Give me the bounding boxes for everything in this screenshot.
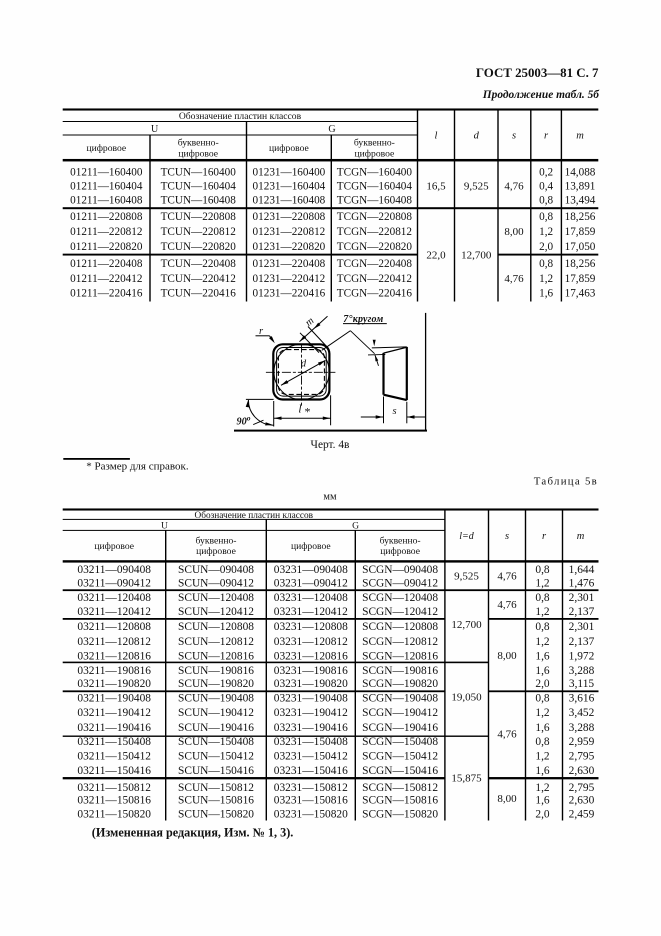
svg-text:TCGN—160404: TCGN—160404: [337, 180, 413, 192]
svg-text:8,00: 8,00: [497, 793, 517, 805]
svg-text:01211—220416: 01211—220416: [70, 287, 143, 299]
svg-text:9,525: 9,525: [464, 180, 489, 192]
svg-text:SCGN—150812: SCGN—150812: [362, 782, 438, 794]
svg-text:01211—220408: 01211—220408: [70, 258, 143, 270]
svg-text:SCGN—190408: SCGN—190408: [362, 693, 438, 705]
svg-text:TCGN—160408: TCGN—160408: [337, 194, 413, 206]
svg-text:Обозначение пластин классов: Обозначение пластин классов: [195, 510, 314, 521]
svg-text:13,494: 13,494: [565, 194, 596, 206]
svg-text:03211—190820: 03211—190820: [77, 678, 151, 690]
svg-text:03231—120808: 03231—120808: [274, 621, 348, 633]
svg-text:s: s: [392, 406, 396, 417]
svg-text:18,256: 18,256: [565, 211, 596, 223]
svg-text:01211—160408: 01211—160408: [70, 194, 143, 206]
svg-text:SCUN—190412: SCUN—190412: [178, 707, 254, 719]
svg-text:03231—120412: 03231—120412: [274, 606, 348, 618]
svg-text:1,6: 1,6: [535, 665, 550, 677]
svg-text:3,616: 3,616: [569, 693, 595, 705]
svg-text:12,700: 12,700: [461, 250, 492, 262]
svg-text:SCGN—120408: SCGN—120408: [362, 592, 438, 604]
svg-text:4,76: 4,76: [497, 570, 517, 582]
svg-text:03231—150416: 03231—150416: [274, 765, 348, 777]
svg-text:SCGN—190816: SCGN—190816: [362, 665, 438, 677]
svg-text:SCUN—150816: SCUN—150816: [178, 795, 254, 807]
svg-text:2,137: 2,137: [569, 636, 595, 648]
svg-text:G: G: [328, 124, 335, 135]
svg-text:0,8: 0,8: [539, 258, 553, 270]
svg-text:SCUN—190416: SCUN—190416: [178, 722, 254, 734]
svg-text:03231—120816: 03231—120816: [274, 650, 348, 662]
svg-text:2,795: 2,795: [569, 782, 595, 794]
svg-text:* Размер для справок.: * Размер для справок.: [86, 460, 189, 472]
svg-text:03211—120408: 03211—120408: [77, 592, 151, 604]
svg-text:буквенно-: буквенно-: [178, 138, 219, 149]
svg-text:цифровое: цифровое: [178, 148, 218, 159]
svg-text:13,891: 13,891: [565, 180, 596, 192]
svg-text:12,700: 12,700: [451, 619, 482, 631]
svg-text:s: s: [512, 131, 516, 142]
svg-text:03211—150416: 03211—150416: [77, 765, 151, 777]
svg-text:03231—150812: 03231—150812: [274, 782, 348, 794]
svg-text:03231—190412: 03231—190412: [274, 707, 348, 719]
svg-text:SCUN—120816: SCUN—120816: [178, 650, 254, 662]
svg-text:9,525: 9,525: [454, 570, 479, 582]
svg-text:03231—120812: 03231—120812: [274, 636, 348, 648]
svg-text:SCUN—090408: SCUN—090408: [178, 564, 254, 576]
svg-text:03231—150816: 03231—150816: [274, 795, 348, 807]
svg-text:буквенно-: буквенно-: [354, 138, 395, 149]
svg-text:1,644: 1,644: [569, 564, 595, 576]
svg-text:цифровое: цифровое: [196, 546, 236, 557]
svg-text:01231—220808: 01231—220808: [253, 211, 326, 223]
svg-text:SCUN—190408: SCUN—190408: [178, 693, 254, 705]
svg-text:0,8: 0,8: [539, 211, 553, 223]
svg-text:03231—090408: 03231—090408: [274, 564, 348, 576]
svg-text:03211—150412: 03211—150412: [77, 751, 151, 763]
svg-text:1,2: 1,2: [535, 636, 550, 648]
svg-text:2,630: 2,630: [569, 795, 595, 807]
svg-text:цифровое: цифровое: [94, 541, 134, 552]
svg-text:SCGN—120816: SCGN—120816: [362, 650, 438, 662]
svg-text:03211—190816: 03211—190816: [77, 665, 151, 677]
svg-text:0,8: 0,8: [535, 564, 550, 576]
svg-text:цифровое: цифровое: [380, 546, 420, 557]
svg-text:03231—090412: 03231—090412: [274, 578, 348, 590]
svg-text:TCGN—220412: TCGN—220412: [337, 273, 412, 285]
svg-text:SCGN—090408: SCGN—090408: [362, 564, 438, 576]
svg-text:19,050: 19,050: [451, 692, 482, 704]
svg-text:8,00: 8,00: [497, 650, 517, 662]
svg-text:8,00: 8,00: [504, 226, 524, 238]
svg-text:TCUN—220412: TCUN—220412: [161, 273, 236, 285]
svg-text:2,137: 2,137: [569, 606, 595, 618]
svg-text:0,4: 0,4: [539, 180, 553, 192]
svg-text:l=d: l=d: [459, 531, 475, 542]
svg-text:TCUN—160408: TCUN—160408: [161, 194, 237, 206]
svg-text:03231—190416: 03231—190416: [274, 722, 348, 734]
svg-text:ГОСТ 25003—81 С. 7: ГОСТ 25003—81 С. 7: [476, 66, 599, 80]
svg-text:2,795: 2,795: [569, 751, 595, 763]
svg-text:SCUN—150408: SCUN—150408: [178, 736, 254, 748]
svg-text:1,2: 1,2: [535, 751, 550, 763]
svg-text:1,476: 1,476: [569, 578, 595, 590]
svg-text:3,115: 3,115: [569, 678, 595, 690]
svg-text:TCGN—220820: TCGN—220820: [337, 241, 413, 253]
svg-text:01211—160404: 01211—160404: [70, 180, 143, 192]
svg-text:SCUN—120808: SCUN—120808: [178, 621, 254, 633]
svg-text:1,2: 1,2: [535, 707, 550, 719]
svg-text:m: m: [576, 131, 584, 142]
svg-text:01231—220408: 01231—220408: [253, 258, 326, 270]
svg-text:SCGN—150820: SCGN—150820: [362, 809, 438, 821]
svg-text:3,452: 3,452: [569, 707, 595, 719]
svg-text:2,0: 2,0: [535, 678, 550, 690]
svg-text:01231—220416: 01231—220416: [253, 287, 326, 299]
svg-text:1,2: 1,2: [539, 226, 553, 238]
svg-text:SCUN—150820: SCUN—150820: [178, 809, 254, 821]
svg-text:Таблица 5в: Таблица 5в: [534, 475, 598, 487]
svg-text:цифровое: цифровое: [355, 148, 395, 159]
svg-text:SCUN—150812: SCUN—150812: [178, 782, 254, 794]
svg-text:01231—220412: 01231—220412: [253, 273, 326, 285]
svg-text:01211—160400: 01211—160400: [70, 167, 143, 179]
svg-text:SCGN—090412: SCGN—090412: [362, 578, 438, 590]
svg-text:4,76: 4,76: [497, 599, 517, 611]
svg-text:1,6: 1,6: [535, 650, 550, 662]
svg-text:03231—190408: 03231—190408: [274, 693, 348, 705]
svg-text:3,288: 3,288: [569, 665, 595, 677]
svg-text:17,463: 17,463: [565, 287, 596, 299]
svg-text:TCUN—220416: TCUN—220416: [161, 287, 237, 299]
svg-text:03231—120408: 03231—120408: [274, 592, 348, 604]
svg-text:цифровое: цифровое: [269, 143, 309, 154]
svg-text:2,301: 2,301: [569, 621, 595, 633]
svg-text:14,088: 14,088: [565, 167, 596, 179]
svg-text:17,050: 17,050: [565, 241, 596, 253]
svg-text:03231—190820: 03231—190820: [274, 678, 348, 690]
svg-text:2,0: 2,0: [535, 809, 550, 821]
svg-text:03211—190412: 03211—190412: [77, 707, 151, 719]
svg-text:17,859: 17,859: [565, 226, 596, 238]
svg-text:2,301: 2,301: [569, 592, 595, 604]
svg-text:SCGN—120412: SCGN—120412: [362, 606, 438, 618]
svg-text:03231—150412: 03231—150412: [274, 751, 348, 763]
svg-text:2,630: 2,630: [569, 765, 595, 777]
svg-text:03211—120808: 03211—120808: [77, 621, 151, 633]
svg-text:буквенно-: буквенно-: [380, 535, 421, 546]
svg-text:l: l: [435, 131, 438, 142]
svg-text:SCGN—120812: SCGN—120812: [362, 636, 438, 648]
svg-text:TCGN—220408: TCGN—220408: [337, 258, 413, 270]
svg-text:1,2: 1,2: [535, 782, 550, 794]
svg-text:SCUN—190820: SCUN—190820: [178, 678, 254, 690]
svg-text:15,875: 15,875: [451, 773, 482, 785]
svg-text:d: d: [301, 359, 307, 370]
svg-text:01231—160400: 01231—160400: [253, 167, 326, 179]
svg-text:03211—150408: 03211—150408: [77, 736, 151, 748]
svg-text:Продолжение табл. 5б: Продолжение табл. 5б: [482, 89, 601, 101]
svg-text:(Измененная редакция, Изм. № 1: (Измененная редакция, Изм. № 1, 3).: [92, 826, 294, 840]
svg-text:SCGN—150408: SCGN—150408: [362, 736, 438, 748]
svg-text:мм: мм: [323, 492, 337, 503]
svg-text:0,8: 0,8: [539, 194, 553, 206]
svg-text:TCGN—220808: TCGN—220808: [337, 211, 413, 223]
svg-text:03211—150816: 03211—150816: [77, 795, 151, 807]
svg-text:01211—220812: 01211—220812: [70, 226, 142, 238]
svg-text:03211—090408: 03211—090408: [77, 564, 151, 576]
svg-text:TCUN—160404: TCUN—160404: [161, 180, 237, 192]
svg-text:01211—220412: 01211—220412: [70, 273, 142, 285]
svg-text:0,8: 0,8: [535, 592, 550, 604]
svg-text:22,0: 22,0: [426, 250, 446, 262]
svg-text:1,2: 1,2: [535, 606, 550, 618]
svg-text:l: l: [298, 404, 301, 416]
svg-text:Черт. 4в: Черт. 4в: [311, 439, 350, 451]
svg-text:03211—190416: 03211—190416: [77, 722, 151, 734]
svg-text:SCUN—150412: SCUN—150412: [178, 751, 254, 763]
svg-text:01231—160404: 01231—160404: [253, 180, 326, 192]
svg-text:SCGN—190412: SCGN—190412: [362, 707, 438, 719]
svg-text:Обозначение пластин классов: Обозначение пластин классов: [179, 111, 302, 122]
svg-text:TCUN—220820: TCUN—220820: [161, 241, 237, 253]
svg-text:G: G: [352, 521, 359, 532]
svg-text:SCUN—190816: SCUN—190816: [178, 665, 254, 677]
svg-text:03211—150812: 03211—150812: [77, 782, 151, 794]
svg-text:03231—190816: 03231—190816: [274, 665, 348, 677]
svg-text:1,2: 1,2: [539, 273, 553, 285]
svg-text:0,8: 0,8: [535, 736, 550, 748]
svg-text:U: U: [151, 124, 159, 135]
svg-text:2,459: 2,459: [569, 809, 595, 821]
svg-text:2,0: 2,0: [539, 241, 553, 253]
svg-text:0,8: 0,8: [535, 693, 550, 705]
svg-text:TCUN—160400: TCUN—160400: [161, 167, 237, 179]
svg-text:01231—220820: 01231—220820: [253, 241, 326, 253]
svg-text:1,6: 1,6: [539, 287, 553, 299]
svg-text:17,859: 17,859: [565, 273, 596, 285]
svg-text:03211—120412: 03211—120412: [77, 606, 151, 618]
svg-text:1,6: 1,6: [535, 765, 550, 777]
svg-text:буквенно-: буквенно-: [196, 535, 237, 546]
svg-text:TCGN—160400: TCGN—160400: [337, 167, 413, 179]
svg-text:16,5: 16,5: [426, 180, 446, 192]
svg-text:цифровое: цифровое: [291, 541, 331, 552]
svg-text:SCGN—190416: SCGN—190416: [362, 722, 438, 734]
svg-text:SCUN—120812: SCUN—120812: [178, 636, 254, 648]
svg-text:03231—150820: 03231—150820: [274, 809, 348, 821]
svg-text:s: s: [505, 531, 509, 542]
svg-text:TCGN—220416: TCGN—220416: [337, 287, 413, 299]
svg-text:цифровое: цифровое: [86, 143, 126, 154]
svg-text:SCGN—120808: SCGN—120808: [362, 621, 438, 633]
svg-text:TCUN—220812: TCUN—220812: [161, 226, 236, 238]
svg-text:18,256: 18,256: [565, 258, 596, 270]
svg-text:1,972: 1,972: [569, 650, 595, 662]
svg-text:03211—090412: 03211—090412: [77, 578, 151, 590]
svg-text:4,76: 4,76: [497, 729, 517, 741]
svg-text:TCGN—220812: TCGN—220812: [337, 226, 412, 238]
svg-text:3,288: 3,288: [569, 722, 595, 734]
svg-text:SCGN—190820: SCGN—190820: [362, 678, 438, 690]
svg-text:4,76: 4,76: [504, 273, 524, 285]
svg-text:01231—160408: 01231—160408: [253, 194, 326, 206]
svg-text:01211—220808: 01211—220808: [70, 211, 143, 223]
svg-text:2,959: 2,959: [569, 736, 595, 748]
svg-text:SCUN—120408: SCUN—120408: [178, 592, 254, 604]
svg-text:0,8: 0,8: [535, 621, 550, 633]
svg-text:SCUN—150416: SCUN—150416: [178, 765, 254, 777]
svg-text:d: d: [474, 131, 480, 142]
svg-text:4,76: 4,76: [504, 180, 524, 192]
svg-text:SCGN—150412: SCGN—150412: [362, 751, 438, 763]
svg-text:1,6: 1,6: [535, 722, 550, 734]
svg-text:*: *: [305, 405, 311, 419]
svg-text:U: U: [161, 521, 168, 532]
svg-text:1,2: 1,2: [535, 578, 550, 590]
svg-text:03211—120812: 03211—120812: [77, 636, 151, 648]
svg-text:03211—120816: 03211—120816: [77, 650, 151, 662]
svg-text:SCGN—150416: SCGN—150416: [362, 765, 438, 777]
svg-text:03211—190408: 03211—190408: [77, 693, 151, 705]
svg-text:01211—220820: 01211—220820: [70, 241, 143, 253]
svg-text:1,6: 1,6: [535, 795, 550, 807]
svg-text:SCGN—150816: SCGN—150816: [362, 795, 438, 807]
svg-text:03211—150820: 03211—150820: [77, 809, 151, 821]
svg-text:01231—220812: 01231—220812: [253, 226, 326, 238]
svg-text:m: m: [577, 531, 585, 542]
svg-text:03231—150408: 03231—150408: [274, 736, 348, 748]
svg-text:SCUN—090412: SCUN—090412: [178, 578, 254, 590]
svg-text:0,2: 0,2: [539, 167, 553, 179]
svg-text:SCUN—120412: SCUN—120412: [178, 606, 254, 618]
svg-text:TCUN—220408: TCUN—220408: [161, 258, 237, 270]
svg-text:TCUN—220808: TCUN—220808: [161, 211, 237, 223]
